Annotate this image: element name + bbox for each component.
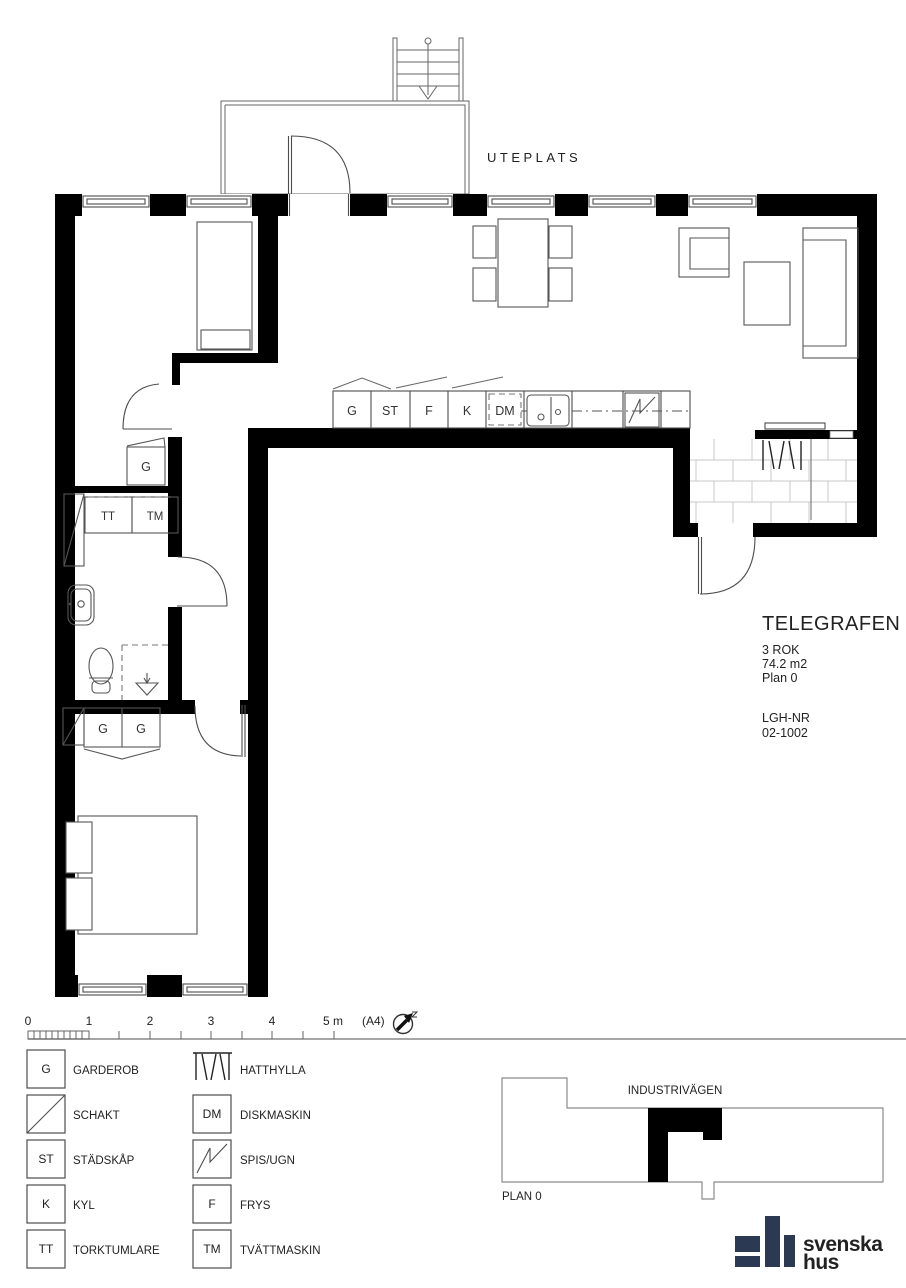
kitchen-unit-label: K xyxy=(463,404,472,418)
legend-label: SPIS/UGN xyxy=(240,1155,295,1167)
threshold-shelf xyxy=(765,423,825,429)
legend: G GARDEROB SCHAKT ST STÄDSKÅP K KYL TT T… xyxy=(27,1050,321,1268)
window xyxy=(588,194,656,216)
logo-word2: hus xyxy=(803,1251,839,1274)
dryer-label: TT xyxy=(101,511,115,523)
info-unit-label: LGH-NR xyxy=(762,711,810,725)
scale-5m: 5 m xyxy=(323,1014,343,1028)
scale-3: 3 xyxy=(208,1014,215,1028)
uteplats-deck xyxy=(221,101,469,194)
legend-label: SCHAKT xyxy=(73,1110,120,1122)
legend-label: HATTHYLLA xyxy=(240,1065,306,1077)
uteplats-label: UTEPLATS xyxy=(487,150,581,165)
site-floor-label: PLAN 0 xyxy=(502,1191,542,1203)
window xyxy=(387,194,453,216)
bedroom1-bed xyxy=(197,222,252,350)
kitchen-unit-label: F xyxy=(425,404,433,418)
coffee-table xyxy=(744,262,790,325)
svenska-hus-logo: svenska hus xyxy=(735,1216,883,1274)
patio-door-opening xyxy=(288,194,350,216)
site-street-label: INDUSTRIVÄGEN xyxy=(628,1085,723,1097)
scale-0: 0 xyxy=(25,1014,32,1028)
bedroom2: G G xyxy=(63,708,197,934)
legend-label: TVÄTTMASKIN xyxy=(240,1245,321,1257)
hatthylla-icon xyxy=(763,440,801,470)
uteplats-door xyxy=(289,136,351,194)
bedroom2-closets: G G xyxy=(84,708,160,759)
scale-2: 2 xyxy=(147,1014,154,1028)
hall-closet: G xyxy=(127,438,165,485)
kitchen-counter: G ST F K DM xyxy=(333,377,690,428)
floor-plan-drawing: UTEPLATS xyxy=(0,0,906,1288)
closet-label: G xyxy=(98,722,108,736)
walls xyxy=(55,194,877,997)
legend-symbol: K xyxy=(42,1197,50,1211)
info-area: 74.2 m2 xyxy=(762,657,807,671)
legend-label: DISKMASKIN xyxy=(240,1110,311,1122)
scale-1: 1 xyxy=(86,1014,93,1028)
site-plan: INDUSTRIVÄGEN PLAN 0 xyxy=(502,1078,883,1203)
scale-paper: (A4) xyxy=(362,1014,385,1028)
washer-label: TM xyxy=(147,511,164,523)
window xyxy=(487,194,555,216)
kitchen-sink xyxy=(527,395,569,426)
hall-brick-floor xyxy=(690,439,857,523)
bathroom-door xyxy=(177,557,227,606)
info-floor: Plan 0 xyxy=(762,671,797,685)
closet-label: G xyxy=(141,460,151,474)
window xyxy=(78,975,147,997)
dining-set xyxy=(473,219,572,307)
toilet xyxy=(89,648,113,693)
exterior-stairs xyxy=(393,38,463,101)
double-bed xyxy=(66,816,197,934)
info-rooms: 3 ROK xyxy=(762,643,800,657)
window xyxy=(186,194,252,216)
legend-label: FRYS xyxy=(240,1200,271,1212)
floorplan-page: UTEPLATS xyxy=(0,0,906,1288)
window xyxy=(82,194,150,216)
legend-label: STÄDSKÅP xyxy=(73,1154,135,1167)
bathroom: TT TM xyxy=(64,494,178,700)
kitchen-unit-label: DM xyxy=(495,404,514,418)
legend-symbol: DM xyxy=(203,1107,222,1121)
kitchen-unit-label: ST xyxy=(382,404,398,418)
bedroom2-door xyxy=(195,705,245,757)
scale-4: 4 xyxy=(269,1014,276,1028)
sofa xyxy=(803,228,858,358)
site-highlighted-unit xyxy=(648,1108,722,1182)
front-door xyxy=(698,523,755,594)
logo-icon xyxy=(735,1216,795,1267)
bedroom1-door xyxy=(123,384,172,429)
north-arrow-icon xyxy=(394,1012,418,1034)
legend-label: TORKTUMLARE xyxy=(73,1245,160,1257)
info-block: TELEGRAFEN 3 ROK 74.2 m2 Plan 0 LGH-NR 0… xyxy=(762,613,900,740)
window xyxy=(182,975,248,997)
legend-symbol: TM xyxy=(203,1242,220,1256)
floor-drain xyxy=(122,645,170,700)
legend-symbol: G xyxy=(41,1062,50,1076)
scale-bar: 0 1 2 3 4 5 m (A4) xyxy=(25,1014,906,1039)
kitchen-unit-label: G xyxy=(347,404,357,418)
stove-icon xyxy=(625,393,659,427)
laundry-machines: TT TM xyxy=(85,497,178,533)
plan-title: TELEGRAFEN xyxy=(762,613,900,635)
legend-symbol: F xyxy=(208,1197,215,1211)
info-unit-number: 02-1002 xyxy=(762,726,808,740)
closet-label: G xyxy=(136,722,146,736)
window xyxy=(688,194,757,216)
legend-label: KYL xyxy=(73,1200,95,1212)
legend-symbol: ST xyxy=(38,1152,54,1166)
hatthylla-legend-icon xyxy=(193,1053,232,1080)
legend-symbol: TT xyxy=(39,1242,54,1256)
armchair xyxy=(679,228,729,277)
legend-label: GARDEROB xyxy=(73,1065,139,1077)
